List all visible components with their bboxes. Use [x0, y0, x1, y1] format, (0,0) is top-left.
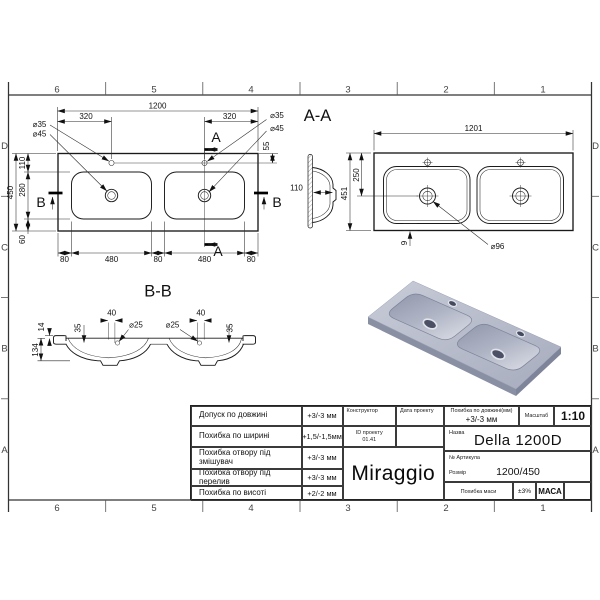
dim-plan-bottom-3: 480 — [198, 255, 212, 264]
section-b-mark-left: B — [36, 194, 45, 210]
zone-col-label: 5 — [151, 503, 156, 514]
project-id-cell: ID проекту 01.41 — [343, 426, 397, 447]
project-id-label: ID проекту — [356, 430, 383, 436]
tolerance-row-label: Похибка по висоті — [191, 486, 302, 501]
zone-col-label: 3 — [345, 503, 350, 514]
section-aa-view: A-A 110 — [290, 107, 336, 228]
tolerance-row-value: +3/-3 мм — [302, 469, 343, 486]
article-label: № Артикула — [449, 455, 480, 461]
label-faucet-dia-left: ⌀35 — [33, 120, 47, 129]
label-faucet-dia-right: ⌀35 — [270, 111, 284, 120]
plan-basin-left — [72, 172, 152, 219]
section-aa-flange — [308, 155, 313, 229]
dim-bb-depth: 134 — [31, 343, 40, 357]
tolerance-row-value: +3/-3 мм — [302, 406, 343, 427]
dim-plan-faucet-depth: 55 — [262, 141, 271, 150]
brand-logo: Miraggio — [343, 447, 445, 502]
zone-col-label: 6 — [54, 85, 59, 96]
tolerance-row-label: Допуск по довжині — [191, 406, 302, 427]
tolerance-row-label: Похибка отвору під перелив — [191, 469, 302, 486]
dim-plan-top-strip: 110 — [18, 156, 27, 169]
dim-plan-bottom-2: 80 — [154, 255, 163, 264]
product-name-value: Della 1200D — [445, 432, 591, 449]
zone-col-label: 2 — [443, 85, 448, 96]
length-tolerance-label: Похибка по довжині(мм) — [451, 408, 513, 414]
dim-bb-overflow-right: 35 — [226, 323, 235, 332]
title-block: Допуск по довжині +3/-3 мм Похибка по ши… — [190, 405, 591, 501]
constructor-cell: Конструктор — [343, 406, 397, 427]
plan-view: 1200 320 320 ⌀35 ⌀45 ⌀35 ⌀45 55 450 110 … — [6, 102, 284, 265]
dim-plan-width: 1200 — [149, 102, 167, 111]
dim-bb-hole-left: 40 — [107, 309, 116, 318]
zone-col-label: 5 — [151, 85, 156, 96]
dim-bb-overflow-left: 35 — [74, 323, 83, 332]
label-bb-overflow-dia-left: ⌀25 — [129, 321, 143, 330]
drawing-sheet: 6 5 4 3 2 1 6 5 4 3 2 1 D C B A D C B A — [0, 0, 600, 600]
length-tolerance-value: +3/-3 мм — [466, 415, 498, 424]
section-a-mark-top: A — [211, 129, 221, 145]
dim-bb-rim: 14 — [37, 322, 46, 331]
section-bb-title: B-B — [144, 283, 172, 301]
scale-label-cell: Масштаб — [519, 406, 554, 427]
label-drain-dia-right: ⌀45 — [270, 124, 284, 133]
zone-col-label: 6 — [54, 503, 59, 514]
zone-row-label: D — [592, 141, 599, 152]
bottom-basin-right — [477, 167, 564, 224]
plan-dimension-lines — [12, 107, 278, 257]
mass-label-cell: МАСА — [536, 482, 564, 501]
section-b-mark-right: B — [272, 194, 281, 210]
article-size-cell: № Артикула Розмір 1200/450 — [444, 451, 592, 482]
bb-overflow-hole-right — [197, 341, 201, 345]
zone-row-label: A — [1, 445, 8, 456]
zone-row-label: B — [1, 344, 7, 355]
length-tolerance-cell: Похибка по довжині(мм) +3/-3 мм — [444, 406, 519, 427]
plan-faucet-hole-left — [109, 160, 114, 165]
tolerance-row-value: +2/-2 мм — [302, 486, 343, 501]
mass-tolerance-value-cell: ±3% — [513, 482, 536, 501]
section-bb-view: B-B 14 — [31, 283, 256, 366]
zone-row-label: B — [592, 344, 598, 355]
dim-bottom-width: 1201 — [465, 124, 483, 133]
dim-plan-bottom-4: 80 — [247, 255, 256, 264]
dim-bottom-height: 451 — [340, 186, 349, 200]
dim-plan-bottom-strip: 60 — [18, 235, 27, 244]
dim-plan-bottom-0: 80 — [60, 255, 69, 264]
zone-col-label: 1 — [540, 85, 545, 96]
zone-row-label: D — [1, 141, 8, 152]
bottom-view: 1201 451 250 9 ⌀96 — [340, 124, 573, 251]
tolerance-row-label: Похибка по ширині — [191, 426, 302, 447]
mass-tolerance-label-cell: Похибка маси — [444, 482, 513, 501]
zone-row-label: A — [592, 445, 599, 456]
drawing-canvas: 6 5 4 3 2 1 6 5 4 3 2 1 D C B A D C B A — [0, 0, 600, 600]
zone-row-label: C — [1, 243, 8, 254]
date-cell: Дата проекту — [396, 406, 444, 427]
render-3d — [368, 281, 561, 396]
size-value: 1200/450 — [445, 466, 591, 478]
zone-col-label: 1 — [540, 503, 545, 514]
dim-plan-faucet-left: 320 — [79, 112, 93, 121]
tolerance-row-value: +1,5/-1,5мм — [302, 426, 343, 447]
empty-cell — [564, 482, 592, 501]
label-bb-overflow-dia-right: ⌀25 — [166, 321, 180, 330]
bottom-basin-left — [384, 167, 471, 224]
zone-col-label: 4 — [248, 85, 253, 96]
plan-drain-left — [105, 189, 117, 201]
zone-col-label: 3 — [345, 85, 350, 96]
bb-overflow-hole-left — [115, 341, 119, 345]
label-drain-dia-left: ⌀45 — [33, 130, 47, 139]
project-id-value: 01.41 — [362, 437, 376, 443]
dim-plan-basin-height: 280 — [18, 183, 27, 197]
zone-col-label: 2 — [443, 503, 448, 514]
dim-plan-total-height: 450 — [6, 185, 15, 199]
section-a-mark-bottom: A — [213, 243, 223, 259]
label-bottom-drain-dia: ⌀96 — [491, 242, 505, 251]
zone-row-label: C — [592, 243, 599, 254]
tolerance-row-label: Похибка отвору під змішувач — [191, 447, 302, 470]
zone-col-label: 4 — [248, 503, 253, 514]
scale-value-cell: 1:10 — [554, 406, 592, 427]
dim-plan-bottom-1: 480 — [105, 255, 119, 264]
section-aa-title: A-A — [304, 107, 332, 125]
dim-bottom-drain-y: 250 — [352, 168, 361, 182]
tolerance-row-value: +3/-3 мм — [302, 447, 343, 470]
empty-cell — [396, 426, 444, 447]
dim-bb-hole-right: 40 — [196, 309, 205, 318]
dim-plan-faucet-right: 320 — [223, 112, 237, 121]
dim-bottom-edge: 9 — [400, 240, 409, 245]
bottom-view-dimension-lines — [346, 130, 573, 246]
dim-aa-depth: 110 — [290, 184, 303, 193]
product-name-cell: Назва Della 1200D — [444, 426, 592, 451]
